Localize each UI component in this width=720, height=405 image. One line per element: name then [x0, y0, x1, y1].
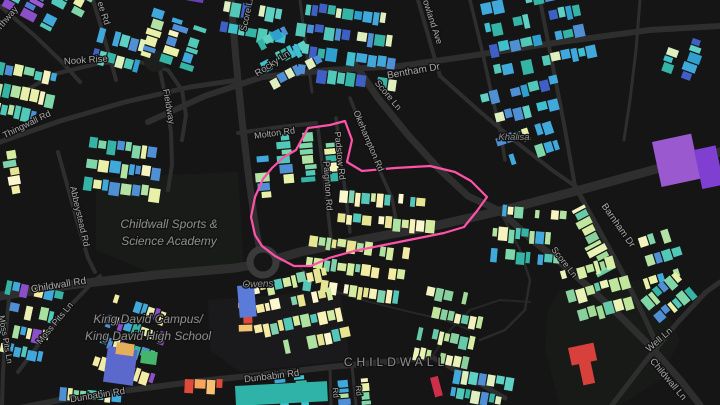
building[interactable]: [307, 24, 315, 33]
building[interactable]: [355, 74, 366, 87]
building[interactable]: [338, 398, 351, 405]
building[interactable]: [507, 207, 513, 215]
building[interactable]: [362, 215, 372, 226]
building[interactable]: [385, 216, 393, 228]
building[interactable]: [302, 155, 314, 164]
building[interactable]: [353, 213, 362, 222]
building[interactable]: [337, 238, 346, 247]
building[interactable]: [216, 379, 222, 388]
poi-label: Childwall Sports &: [120, 217, 217, 231]
building[interactable]: [339, 190, 348, 203]
building[interactable]: [325, 47, 338, 62]
poi-label: King David High School: [85, 329, 211, 343]
building[interactable]: [544, 254, 553, 263]
building[interactable]: [515, 252, 525, 265]
building[interactable]: [371, 193, 376, 202]
building[interactable]: [501, 63, 514, 76]
building[interactable]: [357, 32, 368, 42]
building[interactable]: [376, 193, 384, 207]
building[interactable]: [360, 264, 371, 277]
building[interactable]: [308, 235, 318, 247]
building[interactable]: [131, 184, 140, 196]
building[interactable]: [346, 215, 352, 225]
building[interactable]: [6, 150, 17, 160]
building[interactable]: [514, 207, 524, 219]
building[interactable]: [59, 387, 67, 401]
building[interactable]: [515, 228, 521, 239]
building[interactable]: [521, 228, 529, 237]
building[interactable]: [416, 198, 426, 207]
building[interactable]: [345, 72, 356, 87]
building[interactable]: [397, 269, 406, 280]
building[interactable]: [11, 185, 20, 194]
building[interactable]: [283, 174, 294, 184]
building[interactable]: [184, 379, 194, 393]
building[interactable]: [551, 210, 559, 220]
building[interactable]: [361, 378, 368, 382]
building[interactable]: [140, 350, 158, 365]
building[interactable]: [560, 49, 571, 60]
building[interactable]: [318, 237, 325, 246]
building[interactable]: [337, 72, 346, 84]
building[interactable]: [425, 220, 435, 234]
building[interactable]: [498, 227, 509, 242]
building[interactable]: [384, 194, 391, 205]
building[interactable]: [388, 268, 397, 280]
building[interactable]: [416, 220, 425, 232]
building[interactable]: [319, 3, 328, 13]
building[interactable]: [537, 254, 543, 265]
building[interactable]: [362, 11, 373, 23]
building[interactable]: [93, 179, 102, 189]
building[interactable]: [498, 40, 510, 52]
building[interactable]: [306, 170, 316, 176]
building[interactable]: [256, 304, 265, 314]
building[interactable]: [398, 194, 404, 204]
building[interactable]: [147, 146, 157, 158]
building[interactable]: [337, 263, 347, 272]
building[interactable]: [377, 55, 387, 67]
building[interactable]: [256, 155, 268, 162]
building[interactable]: [86, 159, 98, 170]
poi-label: Science Academy: [121, 234, 218, 248]
building[interactable]: [378, 216, 384, 224]
map-canvas[interactable]: Northwayee RdNook RiseFieldwayThingwall …: [0, 0, 720, 405]
building[interactable]: [560, 211, 567, 220]
building[interactable]: [374, 34, 386, 47]
building[interactable]: [254, 324, 263, 333]
building[interactable]: [361, 193, 370, 205]
street-label: Rd: [353, 385, 363, 396]
building[interactable]: [89, 137, 99, 149]
building[interactable]: [354, 11, 363, 20]
building[interactable]: [206, 380, 215, 395]
building[interactable]: [98, 140, 107, 149]
building[interactable]: [371, 267, 380, 278]
building[interactable]: [239, 325, 253, 332]
building[interactable]: [369, 288, 378, 299]
building[interactable]: [276, 141, 291, 149]
building[interactable]: [279, 164, 293, 174]
building[interactable]: [141, 165, 151, 177]
building[interactable]: [361, 400, 371, 405]
building[interactable]: [194, 379, 205, 389]
building[interactable]: [508, 230, 515, 244]
building[interactable]: [496, 375, 505, 384]
building[interactable]: [117, 141, 125, 151]
poi-label: Owens: [242, 278, 273, 290]
building[interactable]: [348, 190, 354, 203]
building[interactable]: [148, 188, 161, 203]
building[interactable]: [356, 53, 368, 63]
building[interactable]: [392, 219, 401, 232]
building[interactable]: [367, 55, 377, 68]
poi-label: King David Campus/: [93, 312, 204, 326]
building[interactable]: [535, 231, 545, 244]
building[interactable]: [535, 210, 540, 219]
building[interactable]: [512, 16, 522, 26]
building[interactable]: [315, 24, 325, 33]
building[interactable]: [295, 23, 306, 37]
map-svg[interactable]: Northwayee RdNook RiseFieldwayThingwall …: [0, 0, 720, 405]
building[interactable]: [109, 160, 121, 174]
building[interactable]: [115, 342, 134, 356]
building[interactable]: [97, 160, 109, 173]
building[interactable]: [342, 8, 354, 20]
building[interactable]: [261, 191, 271, 198]
building[interactable]: [228, 23, 239, 34]
building[interactable]: [120, 183, 132, 195]
building[interactable]: [327, 5, 336, 15]
building[interactable]: [141, 184, 149, 195]
building[interactable]: [108, 182, 120, 197]
building[interactable]: [316, 70, 328, 85]
building[interactable]: [341, 29, 350, 40]
building[interactable]: [386, 57, 395, 69]
poi-label: Khalisa: [498, 132, 529, 143]
building[interactable]: [323, 27, 335, 41]
building[interactable]: [125, 142, 132, 152]
building[interactable]: [150, 167, 161, 181]
road: [330, 368, 331, 405]
building[interactable]: [337, 213, 345, 223]
building[interactable]: [402, 220, 409, 229]
building[interactable]: [505, 249, 515, 260]
building[interactable]: [490, 248, 498, 263]
place-label: CHILDWALL: [344, 355, 448, 369]
building[interactable]: [492, 228, 497, 237]
building[interactable]: [410, 197, 416, 207]
building[interactable]: [545, 232, 551, 245]
street-label: Rd: [330, 387, 340, 398]
